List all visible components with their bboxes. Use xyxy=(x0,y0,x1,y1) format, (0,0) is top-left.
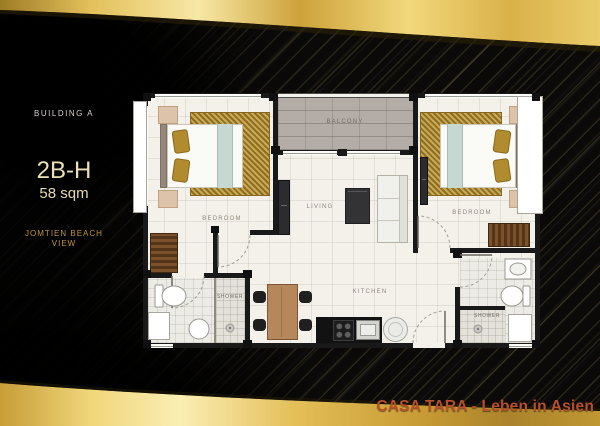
label-living: LIVING xyxy=(307,204,334,210)
pillow xyxy=(171,129,190,154)
label-balcony: BALCONY xyxy=(326,119,363,125)
bed-runner xyxy=(447,124,463,188)
column-post xyxy=(532,93,540,101)
wall-bathroom-right-left xyxy=(455,287,460,343)
column-post xyxy=(143,93,151,101)
view-line2: VIEW xyxy=(52,239,76,248)
label-bedroom-right: BEDROOM xyxy=(452,210,491,216)
unit-area-label: 58 sqm xyxy=(16,185,112,202)
entrance-door-opening xyxy=(413,343,445,348)
dining-chair xyxy=(253,319,266,331)
window-bedroom-left-top xyxy=(155,94,261,98)
stove xyxy=(333,320,354,341)
balcony-railing xyxy=(278,93,418,98)
label-shower-left: SHOWER xyxy=(217,294,243,300)
column-post xyxy=(409,146,418,154)
sliding-door-right-panel xyxy=(346,151,400,155)
column-post xyxy=(532,340,540,348)
column-post xyxy=(243,270,252,278)
window-bathroom-right-bottom xyxy=(509,344,533,348)
dining-chair xyxy=(253,291,266,303)
column-post xyxy=(211,226,219,233)
door-arc-bedroom-left xyxy=(218,235,250,267)
window-box-bathroom-left xyxy=(148,312,170,340)
window-bathroom-left-bottom xyxy=(149,344,173,348)
wall-shower-right-partition xyxy=(460,306,505,310)
column-post xyxy=(243,340,252,348)
wardrobe-bedroom-left xyxy=(150,233,178,273)
wall-bathroom-left-right xyxy=(245,273,250,343)
sliding-door-center-post xyxy=(338,149,347,156)
column-post xyxy=(143,270,151,278)
pillow xyxy=(492,129,511,154)
wall-bedroom-right-bottom-stub xyxy=(413,248,418,253)
pillow xyxy=(492,158,511,183)
sofa-cushion-line xyxy=(378,198,399,199)
gold-ribbon-top xyxy=(0,0,600,70)
marketing-slide: BUILDING A 2B-H 58 sqm JOMTIEN BEACH VIE… xyxy=(0,0,600,426)
bed-headboard-left xyxy=(160,124,167,188)
wall-bedroom-left-bottom xyxy=(250,230,278,235)
pillow xyxy=(171,158,190,183)
window-box-bedroom-right xyxy=(517,96,543,214)
brand-text: CASA TARA - Leben in Asien xyxy=(376,398,594,416)
wardrobe-bedroom-right xyxy=(488,223,530,247)
door-arc-entrance xyxy=(413,311,445,343)
wall-bottom xyxy=(143,343,540,348)
sofa xyxy=(377,175,408,243)
coffee-table xyxy=(345,188,370,224)
column-post xyxy=(143,340,151,348)
label-bedroom-left: BEDROOM xyxy=(202,216,241,222)
shower-left-glass-partition xyxy=(214,278,216,343)
label-kitchen: KITCHEN xyxy=(353,289,388,295)
window-box-bathroom-right xyxy=(508,314,532,342)
bed-runner xyxy=(217,124,233,188)
column-post xyxy=(409,93,418,101)
door-arc-bedroom-right xyxy=(418,216,450,248)
window-box-bedroom-left xyxy=(133,101,147,213)
dining-table xyxy=(267,284,298,340)
building-label: BUILDING A xyxy=(16,109,112,118)
sofa-cushion-line xyxy=(378,220,399,221)
dining-chair xyxy=(299,319,312,331)
sliding-door-left-panel xyxy=(283,151,337,155)
label-shower-right: SHOWER xyxy=(474,313,500,319)
sofa-back xyxy=(399,176,407,242)
column-post xyxy=(453,250,462,258)
wall-bedroom-left-hall xyxy=(213,230,218,273)
wall-bedroom-left-living xyxy=(273,93,278,235)
column-post xyxy=(453,340,462,348)
column-post xyxy=(269,93,278,101)
shower-left-floor xyxy=(216,278,245,343)
wall-living-bedroom-right xyxy=(413,93,418,253)
wall-bedroom-right-bottom xyxy=(450,248,540,253)
kitchen-sink xyxy=(356,320,380,340)
tv-console-bedroom-right xyxy=(420,157,428,205)
washing-machine xyxy=(383,317,408,342)
view-label: JOMTIEN BEACH VIEW xyxy=(16,229,112,249)
view-line1: JOMTIEN BEACH xyxy=(25,229,103,238)
unit-type-label: 2B-H xyxy=(16,157,112,185)
floor-plan: BALCONY LIVING BEDROOM BEDROOM KITCHEN S… xyxy=(143,93,540,348)
nightstand xyxy=(158,106,178,124)
dining-chair xyxy=(299,291,312,303)
tv-console-living xyxy=(278,180,290,235)
window-bedroom-right-top xyxy=(425,94,532,98)
column-post xyxy=(271,146,280,154)
nightstand xyxy=(158,190,178,208)
